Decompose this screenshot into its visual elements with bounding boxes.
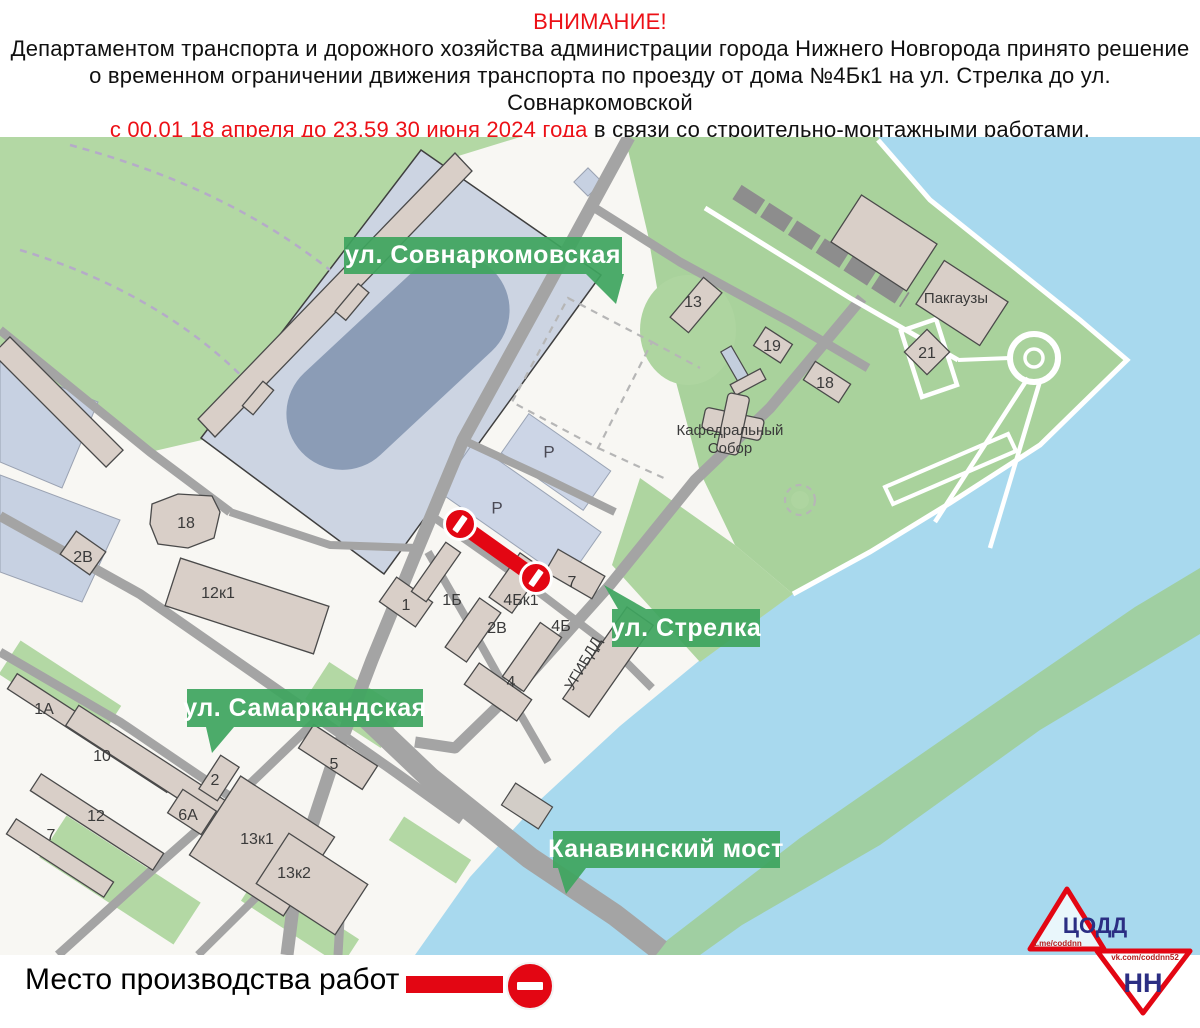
building-label: 10 bbox=[93, 748, 111, 765]
poster: ВНИМАНИЕ! Департаментом транспорта и дор… bbox=[0, 0, 1200, 1028]
building-label: 19 bbox=[763, 338, 781, 355]
header-announcement: ВНИМАНИЕ! Департаментом транспорта и дор… bbox=[0, 0, 1200, 137]
city-map: 13 19 18 21 18 2В 12к1 1 1Б 4Бк1 2В 4Б 7… bbox=[0, 137, 1200, 955]
building-label: 7 bbox=[568, 574, 577, 591]
building-label: 7 bbox=[47, 827, 56, 844]
building-label: 1А bbox=[34, 701, 54, 718]
building-label: 13к2 bbox=[277, 865, 311, 882]
roundabout bbox=[791, 491, 809, 509]
building-label: 21 bbox=[918, 345, 936, 362]
street-banner-label: Канавинский мост bbox=[548, 835, 784, 863]
building-label: 12к1 bbox=[201, 585, 235, 602]
building-label: 12 bbox=[87, 808, 105, 825]
building-label: 18 bbox=[177, 515, 195, 532]
building-label: 18 bbox=[816, 375, 834, 392]
cathedral-label-line2: Собор bbox=[708, 440, 752, 457]
building-label: 13к1 bbox=[240, 831, 274, 848]
building-label: 2В bbox=[487, 620, 507, 637]
building-label: 5 bbox=[330, 756, 339, 773]
building-label: 1Б bbox=[442, 592, 461, 609]
pakgauzy-label: Пакгаузы bbox=[924, 290, 988, 307]
header-title: ВНИМАНИЕ! bbox=[0, 8, 1200, 35]
logo-telegram-link: t.me/coddnn bbox=[1034, 939, 1082, 948]
parking-label: Р bbox=[491, 498, 502, 517]
cathedral-label-line1: Кафедральный bbox=[677, 422, 784, 439]
building-label: 2В bbox=[73, 549, 93, 566]
street-banner-label: ул. Стрелка bbox=[611, 614, 762, 642]
header-line-3: о временном ограничении движения транспо… bbox=[0, 62, 1200, 116]
building-label: 1 bbox=[402, 597, 411, 614]
no-entry-icon bbox=[506, 962, 554, 1010]
legend-label: Место производства работ - bbox=[25, 963, 418, 997]
building-label: 2 bbox=[211, 772, 220, 789]
logo-text-codd: ЦОДД bbox=[1063, 913, 1128, 938]
parking-label: Р bbox=[543, 442, 554, 461]
building-label: 6А bbox=[178, 807, 198, 824]
building-label: 13 bbox=[684, 294, 702, 311]
street-banner-label: ул. Совнаркомовская bbox=[345, 241, 621, 269]
street-banner-label: ул. Самаркандская bbox=[183, 694, 426, 722]
header-line-2: Департаментом транспорта и дорожного хоз… bbox=[0, 35, 1200, 62]
closure-line-sample bbox=[406, 976, 503, 993]
building-label: 4 bbox=[507, 674, 516, 691]
building-label: 4Б bbox=[551, 618, 570, 635]
logo-vk-link: vk.com/coddnn52 bbox=[1111, 953, 1179, 962]
codd-nn-logo: ЦОДД t.me/coddnn vk.com/coddnn52 НН bbox=[1020, 885, 1200, 1028]
logo-text-nn: НН bbox=[1124, 968, 1163, 998]
